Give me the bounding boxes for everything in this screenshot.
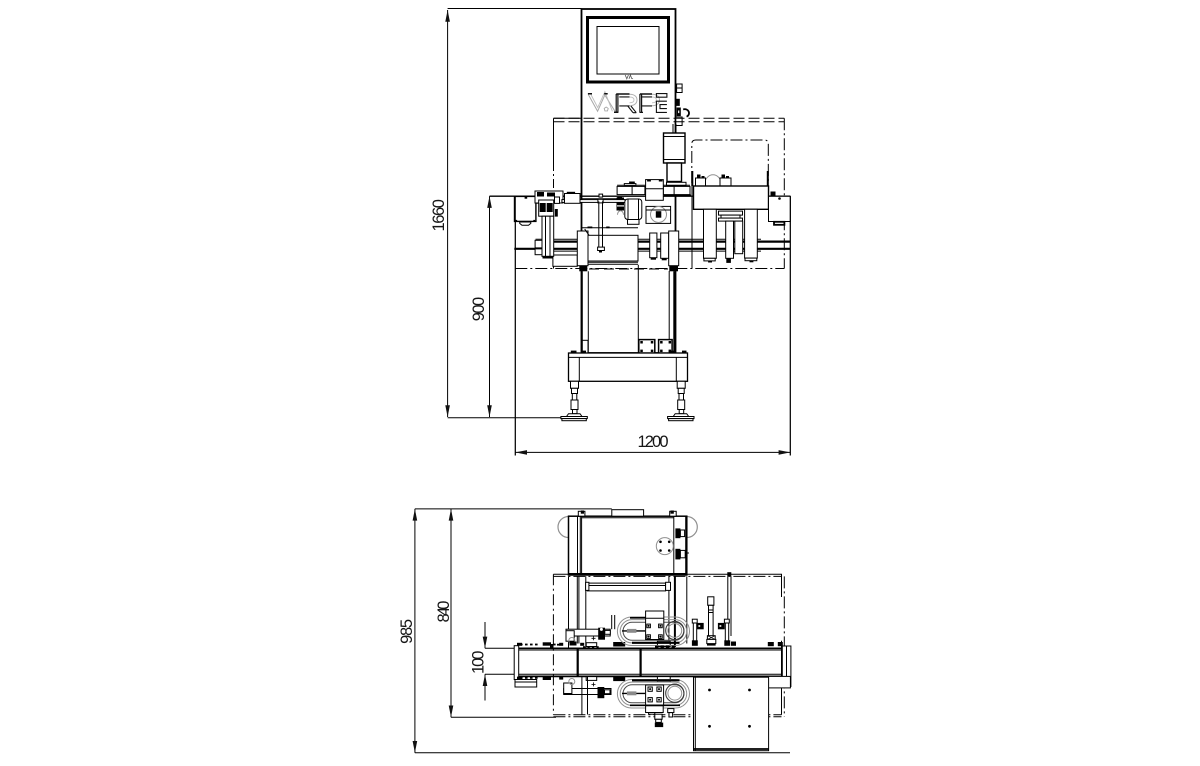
svg-text:985: 985 [398,619,416,644]
svg-text:1200: 1200 [638,433,669,451]
svg-text:1660: 1660 [430,199,448,232]
svg-text:840: 840 [435,601,453,623]
svg-text:100: 100 [470,651,488,675]
svg-text:900: 900 [470,297,488,322]
